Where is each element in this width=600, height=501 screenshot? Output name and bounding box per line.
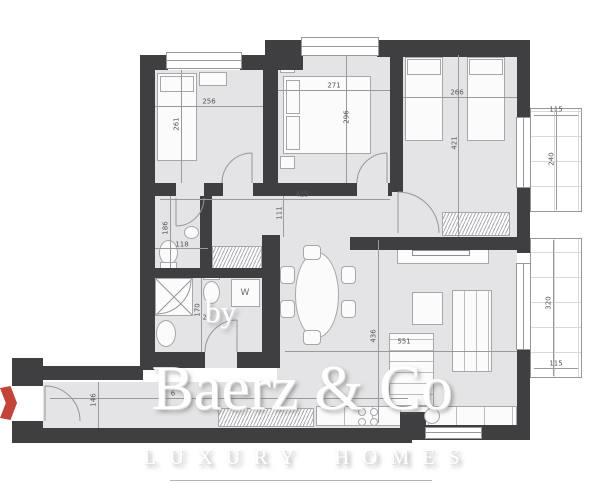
window-kitchen (425, 427, 482, 439)
wc-sink (184, 226, 199, 239)
pillow (286, 116, 300, 150)
dim-line (534, 368, 578, 369)
washing-machine-label: W (241, 288, 250, 298)
window-line (167, 60, 241, 61)
tv (412, 250, 470, 256)
pillow (407, 59, 441, 75)
dim-bedroom1-width: 256 (202, 99, 215, 106)
dining-table (295, 252, 339, 338)
wall-segment (517, 40, 530, 117)
dim-line (170, 196, 171, 268)
dim-wc-width: 118 (175, 242, 188, 249)
door-gap-bedroom1 (223, 183, 253, 196)
chair (280, 300, 295, 318)
dim-line (160, 199, 390, 200)
dim-balcony-top-width: 115 (549, 107, 562, 114)
wall-segment (517, 188, 530, 253)
chair (341, 266, 356, 284)
shelf (199, 72, 227, 86)
pillow (160, 76, 194, 92)
dim-living-width: 551 (397, 339, 410, 346)
sofa-arm-vertical (452, 290, 492, 372)
dim-bedroom3-width: 266 (450, 90, 463, 97)
pillow (469, 59, 503, 75)
dim-bedroom3-depth: 421 (452, 136, 459, 149)
dim-line (553, 240, 554, 376)
side-table (412, 292, 443, 325)
wall-segment (140, 55, 155, 370)
balcony-bottom (530, 238, 582, 378)
dim-bedroom2-width: 271 (327, 83, 340, 90)
dim-balcony-top-depth: 240 (549, 152, 556, 165)
dim-hall-depth: 111 (277, 206, 284, 219)
wall-segment (350, 237, 517, 250)
dim-balcony-bottom-depth: 320 (546, 296, 553, 309)
dim-entry-depth: 146 (91, 393, 98, 406)
dim-balcony-bottom-width: 115 (549, 361, 562, 368)
dim-line (181, 70, 182, 183)
door-gap-bedroom3 (392, 192, 403, 235)
dim-line (403, 97, 517, 98)
wall-segment (263, 55, 278, 183)
bath-sink (156, 320, 176, 347)
wall-segment (140, 183, 176, 196)
dim-bedroom1-depth: 261 (174, 117, 181, 130)
dim-wc-depth: 186 (163, 221, 170, 234)
watermark-tagline: LUXURY HOMES (143, 445, 472, 470)
dim-living-depth: 436 (371, 329, 378, 342)
dim-bath-depth: 170 (195, 303, 202, 316)
wall-segment (43, 366, 143, 380)
door-gap-wc (176, 183, 204, 196)
dim-line (556, 112, 557, 210)
window-line (523, 118, 524, 187)
window-line (523, 264, 524, 349)
window-line (426, 432, 481, 433)
shower-tray (155, 278, 193, 316)
chair (341, 300, 356, 318)
wall-segment (200, 196, 212, 268)
watermark-by: by (205, 294, 236, 330)
wall-segment (140, 268, 277, 278)
window-line (302, 46, 378, 47)
wall-segment (240, 55, 265, 70)
watermark-brand: Baerz & Co (152, 352, 453, 425)
dim-hall-width: 425 (295, 192, 308, 199)
wall-segment (262, 235, 280, 352)
wall-segment (12, 428, 412, 443)
pillow (286, 80, 300, 114)
door-gap-bedroom2 (357, 183, 388, 196)
dim-bedroom2-depth: 296 (344, 110, 351, 123)
wardrobe (442, 212, 510, 236)
wall-segment (12, 358, 43, 386)
dim-line (278, 90, 390, 91)
nightstand (280, 156, 295, 169)
chair (303, 245, 321, 260)
dim-line (98, 382, 99, 428)
wall-segment (204, 183, 223, 196)
dim-line (155, 106, 263, 107)
hall-closet (212, 246, 262, 269)
wall-segment (390, 40, 403, 192)
watermark-underline (170, 480, 432, 481)
floor-plan: W 256 261 271 296 266 421 425 111 186 11… (0, 0, 600, 501)
chair (280, 266, 295, 284)
chair (303, 330, 321, 345)
